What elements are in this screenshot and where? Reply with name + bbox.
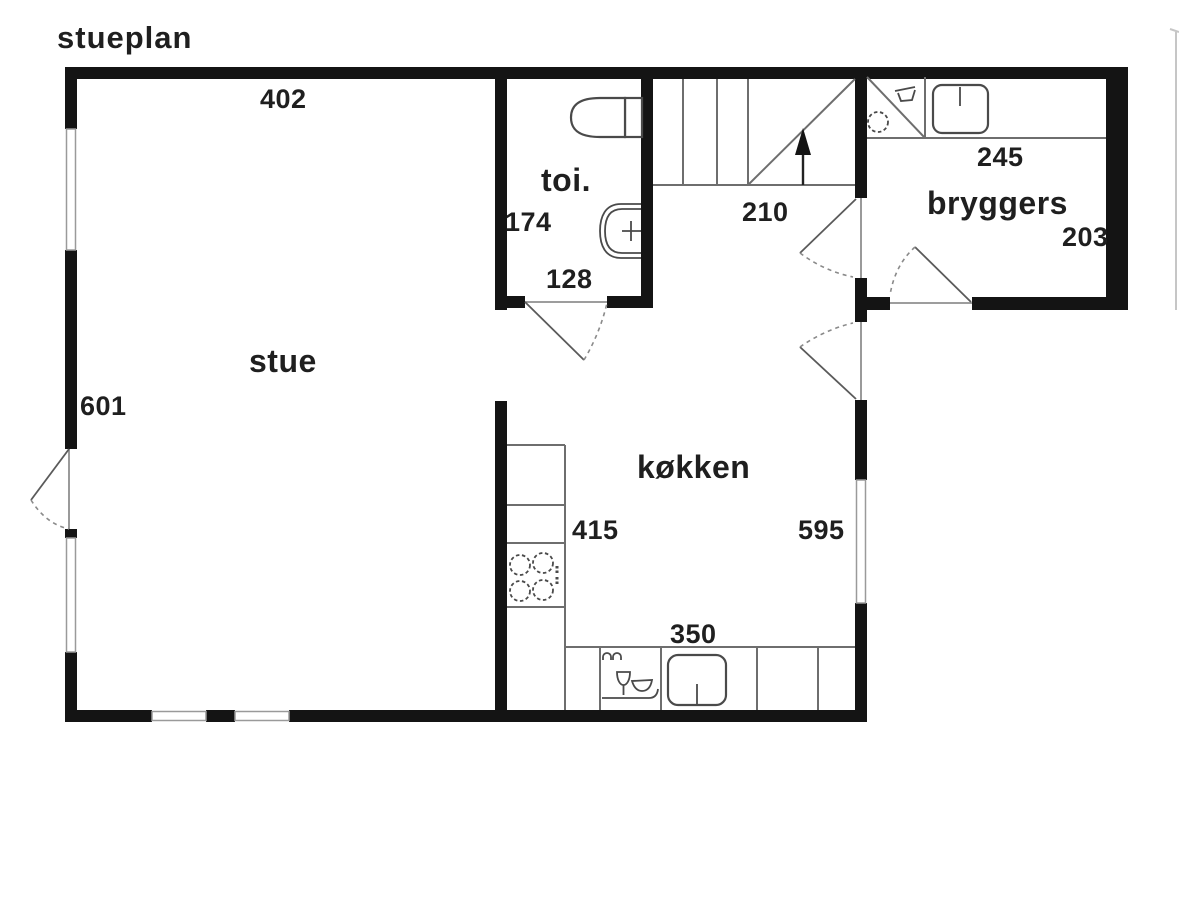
wall-bryggers-bottom-stub [855, 297, 890, 310]
wall-middle-segment [855, 603, 867, 722]
cropped-adjacent-drawing-edge [1170, 29, 1179, 310]
wall-bryggers-bottom [972, 297, 1128, 310]
stairs-break-line [748, 79, 855, 185]
wall-middle-segment [855, 67, 867, 198]
toilet-door [525, 302, 607, 360]
dim-bryggers-height: 203 [1062, 222, 1109, 252]
cooktop-icon [510, 553, 557, 601]
hand-basin-icon [600, 204, 641, 258]
wall-bottom-segment [206, 710, 235, 722]
bryggers-counter-diagonal [867, 77, 925, 138]
kitchen-sink-icon [668, 655, 726, 705]
floor-plan-drawing: stueplan 402 601 stue toi. 174 128 210 2… [0, 0, 1179, 912]
dim-kitchen-bottom: 350 [670, 619, 717, 649]
bryggers-fixtures [867, 77, 1106, 138]
washing-machine-icon [868, 112, 888, 132]
wall-left-segment [65, 529, 77, 538]
walls [65, 67, 1128, 722]
hall-bryggers-door [800, 198, 861, 278]
wall-stue-kitchen-divider [495, 401, 507, 722]
room-label-kitchen: køkken [637, 449, 750, 485]
wall-toilet-bottom-segment [495, 296, 525, 308]
wall-bryggers-right [1106, 67, 1128, 310]
dim-kitchen-right: 595 [798, 515, 845, 545]
utility-sink-icon [933, 85, 988, 133]
kitchen-back-door [800, 322, 861, 400]
wall-top [65, 67, 1128, 79]
dim-stue-left-height: 601 [80, 391, 127, 421]
toilet-icon [571, 98, 642, 137]
dim-toilet-width: 128 [546, 264, 593, 294]
window-left-lower [67, 538, 76, 652]
dishwasher-icon [602, 653, 658, 698]
window-bottom-right [235, 712, 289, 721]
wall-left-segment [65, 250, 77, 449]
dim-stairs-width: 210 [742, 197, 789, 227]
window-bottom-left [152, 712, 206, 721]
wall-bottom-segment [289, 710, 865, 722]
bryggers-exterior-door [890, 247, 972, 303]
wall-middle-segment [855, 400, 867, 480]
wall-left-segment [65, 67, 77, 129]
dim-bryggers-width: 245 [977, 142, 1024, 172]
dim-toilet-height: 174 [505, 207, 552, 237]
wall-toilet-left [495, 67, 507, 310]
room-label-bryggers: bryggers [927, 185, 1068, 221]
laundry-sink-icon [895, 87, 915, 101]
window-left-upper [67, 129, 76, 250]
wall-bottom-segment [65, 710, 152, 722]
dim-stue-top-width: 402 [260, 84, 307, 114]
plan-title: stueplan [57, 20, 192, 55]
room-label-toilet: toi. [541, 162, 591, 198]
staircase [653, 79, 855, 185]
window-kitchen-right [857, 480, 866, 603]
entry-door-left [31, 449, 69, 529]
floor-plan-page: stueplan 402 601 stue toi. 174 128 210 2… [0, 0, 1179, 912]
room-label-stue: stue [249, 343, 317, 379]
dim-kitchen-upper: 415 [572, 515, 619, 545]
